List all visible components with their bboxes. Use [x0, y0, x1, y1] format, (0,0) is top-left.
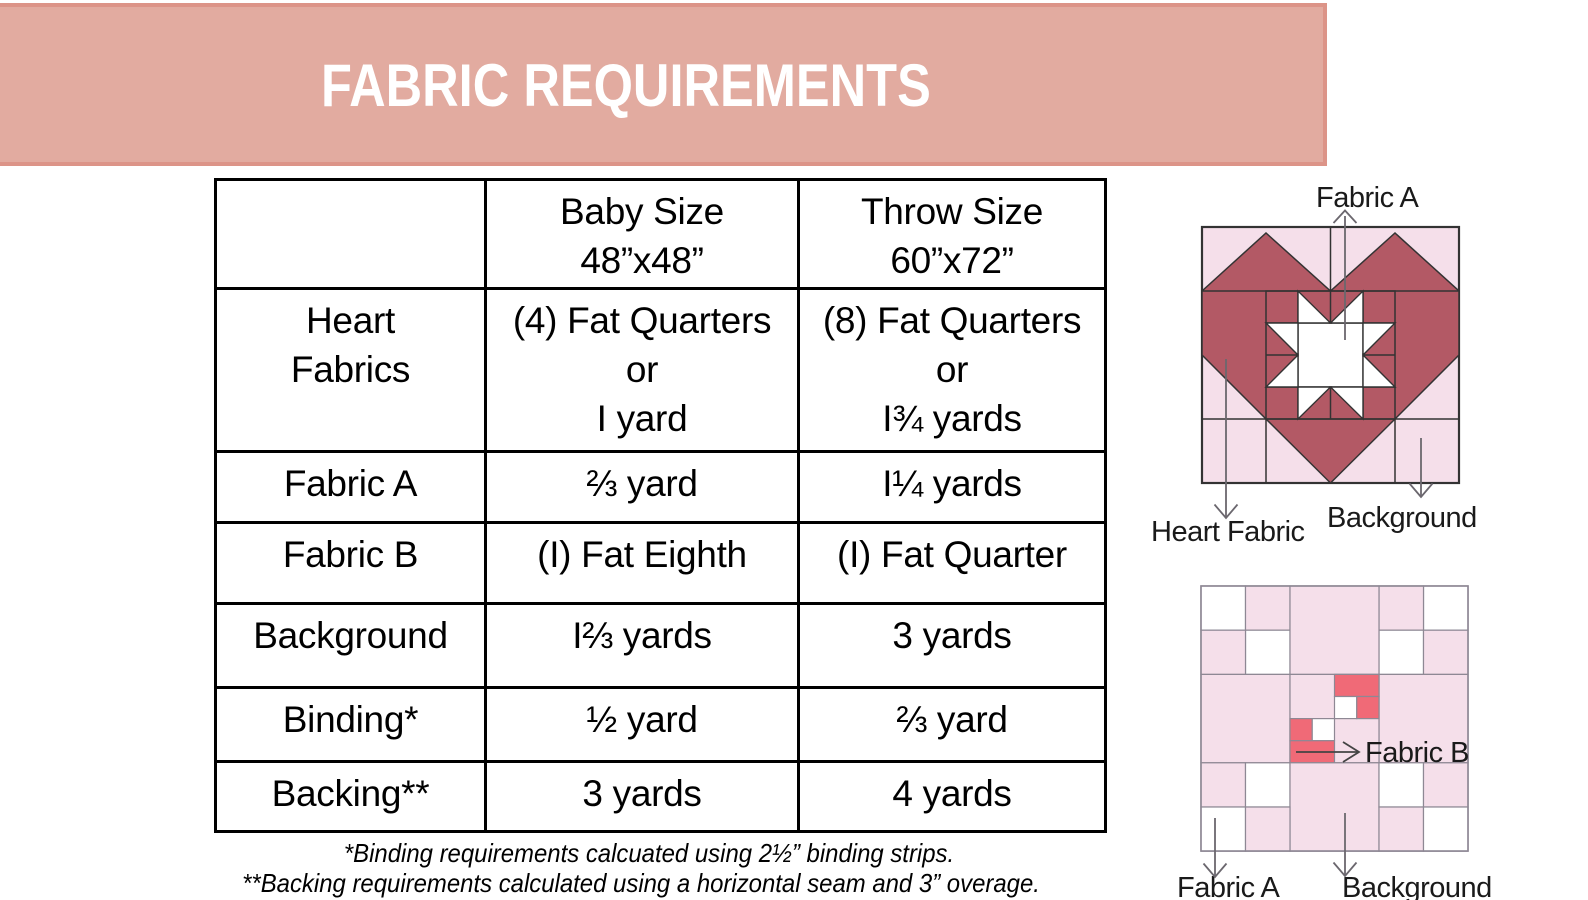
svg-text:Fabric B: Fabric B [1365, 737, 1469, 769]
svg-text:Heart Fabric: Heart Fabric [1151, 516, 1305, 548]
svg-text:Background: Background [1327, 502, 1477, 534]
svg-text:Background: Background [1342, 872, 1492, 900]
svg-text:Fabric A: Fabric A [1177, 872, 1281, 900]
svg-text:Fabric A: Fabric A [1316, 182, 1420, 214]
